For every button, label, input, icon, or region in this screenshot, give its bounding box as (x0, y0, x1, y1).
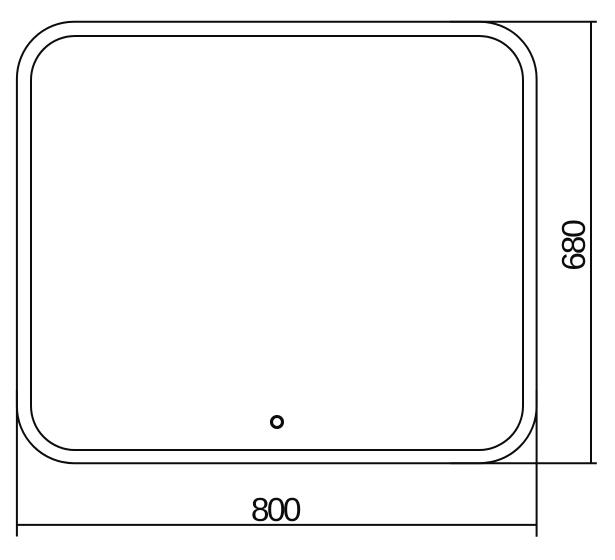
svg-text:800: 800 (251, 492, 301, 529)
svg-text:680: 680 (556, 220, 593, 271)
